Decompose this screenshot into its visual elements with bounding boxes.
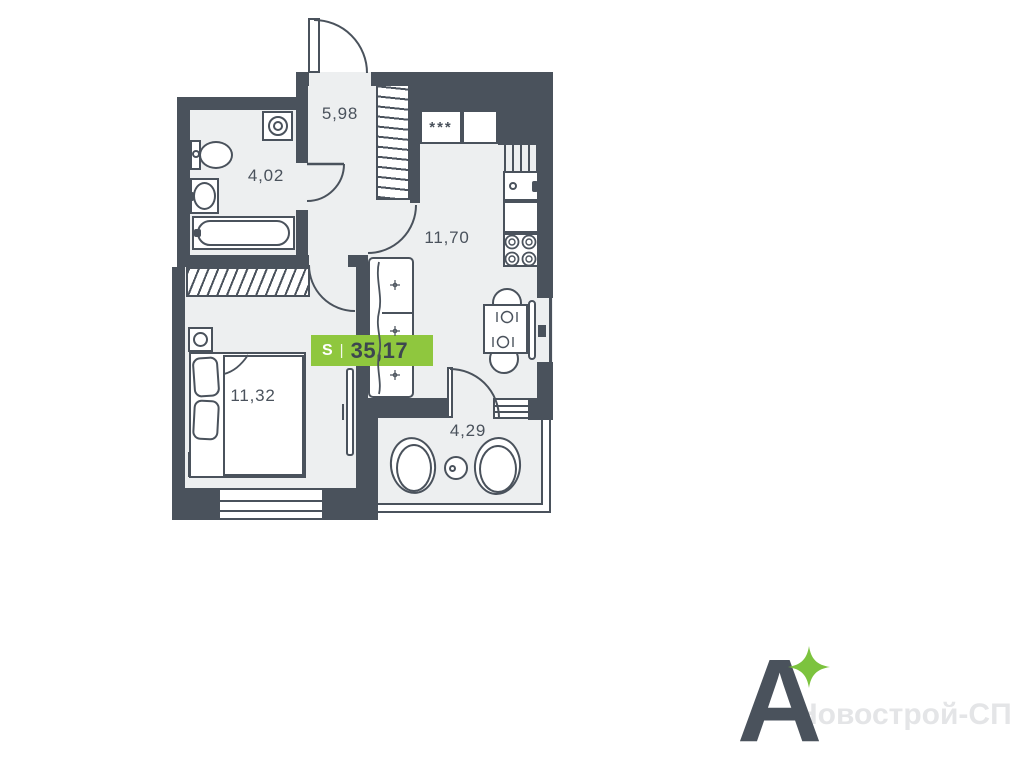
sparkle-star-icon: [788, 646, 830, 688]
floorplan-page: *** 5,98 4,02 11,70 11,32 4,29 S | 35,17: [0, 0, 1012, 768]
wall-bathroom-left: [177, 110, 190, 267]
shelf-line: [495, 405, 528, 407]
watermark-text: Новострой-СПб: [796, 698, 1012, 732]
wall-bedroom-kitchen: [356, 255, 368, 398]
sofa-cushion-divider: [382, 312, 413, 314]
toilet-flush-button: [192, 150, 200, 158]
wall-bathroom-top: [177, 97, 308, 110]
wall-top-right-corner: [498, 110, 553, 145]
loggia-doorway: [449, 398, 493, 418]
loggia-glazing-bottom: [378, 503, 551, 513]
kitchen-cabinet: [462, 110, 498, 144]
bedroom-wardrobe: [186, 267, 310, 297]
tv-mount: [342, 404, 344, 420]
loggia-chair-right-seat: [479, 445, 517, 493]
bathtub-faucet-icon: [194, 229, 201, 237]
wall-kitchen-loggia: [368, 398, 449, 418]
sofa: [368, 257, 414, 398]
wall-bedroom-bottom-right: [322, 488, 378, 520]
stove: [503, 233, 539, 267]
wall-right-loggia-corner: [528, 398, 553, 420]
lamp-icon: [193, 332, 208, 347]
wall-bedroom-bottom-left: [172, 488, 220, 520]
kitchen-faucet-icon: [532, 181, 538, 192]
kitchen-sink: [503, 171, 539, 201]
badge-s-label: S: [322, 342, 333, 360]
shelf-line: [495, 411, 528, 413]
bathroom-doorway: [296, 163, 308, 210]
loggia-chair-left-seat: [396, 444, 432, 492]
loggia-door-leaf: [447, 367, 453, 418]
pillow: [192, 399, 220, 440]
room-area-label-loggia: 4,29: [450, 421, 486, 441]
kitchen-counter: [503, 201, 539, 233]
fridge-marker: ***: [429, 119, 453, 136]
kitchen-window-mullion: [538, 325, 546, 337]
wall-right-upper: [537, 145, 553, 298]
loggia-side-table: [444, 456, 468, 480]
wall-bedroom-left: [172, 267, 185, 520]
wall-bathroom-bedroom: [177, 255, 309, 267]
washing-machine: [262, 111, 293, 141]
loggia-side-table-dot: [449, 465, 456, 472]
tv-panel: [346, 368, 354, 456]
washing-machine-drum-inner: [273, 121, 283, 131]
toilet-bowl: [199, 141, 233, 169]
room-area-label-kitchen-living: 11,70: [424, 228, 469, 248]
bathtub-basin: [197, 220, 290, 246]
nightstand-top: [188, 327, 213, 352]
wall-right-lower: [537, 362, 553, 398]
loggia-step-shelf: [493, 398, 530, 419]
wall-bathroom-hall-upper: [296, 86, 308, 163]
kitchen-window-frame: [528, 300, 536, 360]
kitchen-window-outer-line: [549, 298, 552, 362]
kitchen-sink-drain: [509, 182, 517, 190]
dish-rack: [504, 145, 539, 171]
fridge-cabinet: ***: [420, 110, 462, 144]
dining-table: [483, 304, 528, 354]
wall-top-left-of-entry: [296, 72, 309, 86]
room-area-label-bedroom: 11,32: [230, 386, 275, 406]
loggia-glazing-right: [541, 420, 551, 505]
hallway-closet: [376, 84, 410, 200]
entry-doorway: [309, 72, 371, 86]
entry-door-arc: [314, 20, 367, 73]
wall-closet-right: [410, 86, 420, 203]
bedroom-window-line: [220, 500, 322, 502]
bathroom-sink-basin: [193, 182, 216, 210]
badge-separator: |: [340, 342, 344, 359]
bed-blanket: [223, 355, 304, 476]
room-area-label-bathroom: 4,02: [248, 166, 284, 186]
room-area-label-hallway: 5,98: [322, 104, 358, 124]
total-area-badge: S | 35,17: [311, 335, 433, 366]
sink-faucet-icon: [188, 192, 194, 201]
badge-total-area: 35,17: [351, 338, 409, 364]
wall-top-kitchen-thick: [417, 86, 553, 110]
pillow: [192, 356, 221, 398]
entry-door-leaf: [308, 18, 320, 73]
bedroom-window: [220, 488, 322, 520]
bedroom-window-line: [220, 510, 322, 512]
